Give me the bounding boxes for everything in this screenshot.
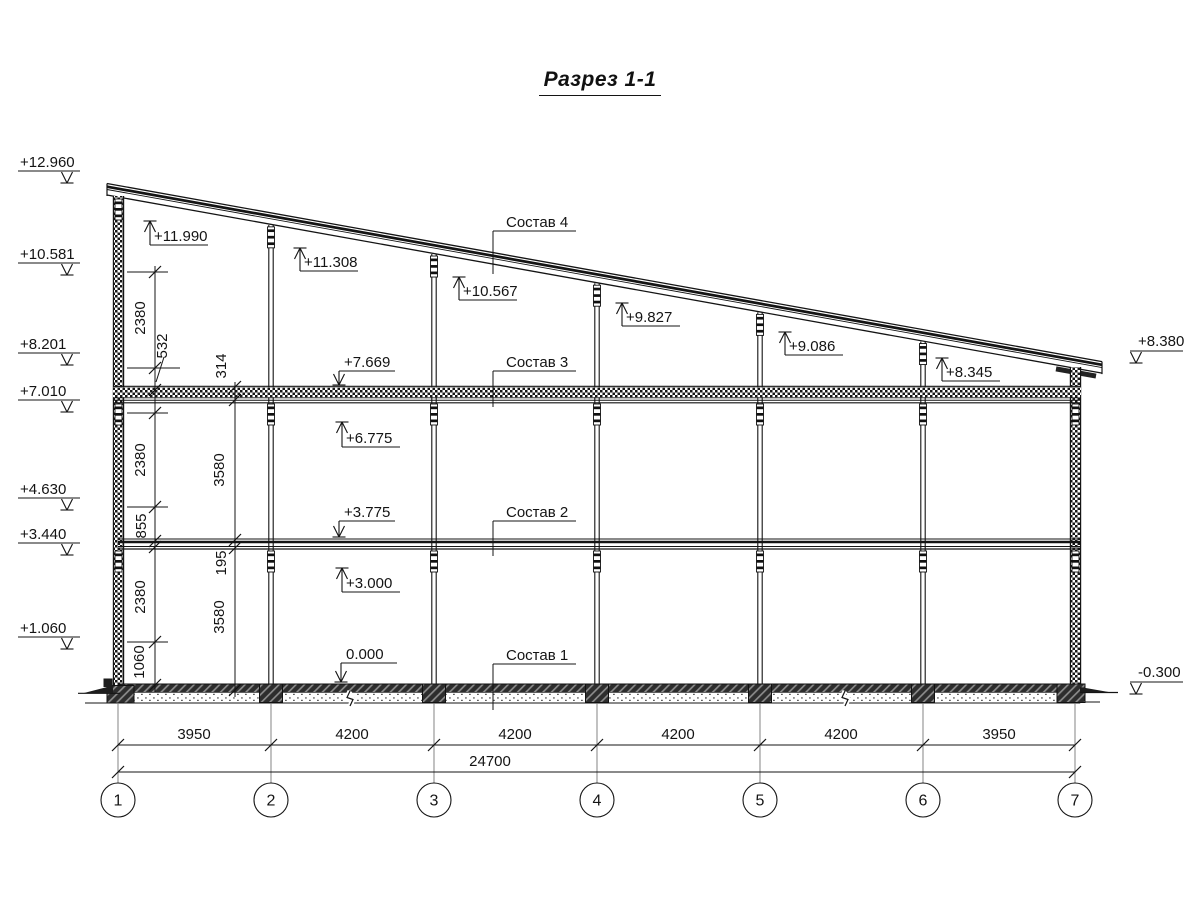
layer-label: Состав 1 bbox=[506, 647, 568, 664]
elevation-mark-arrow bbox=[937, 358, 943, 369]
elevation-mark-arrow bbox=[67, 354, 73, 365]
elevation-mark-text: +3.000 bbox=[346, 575, 392, 592]
splice-bolt bbox=[115, 208, 122, 211]
splice-bolt bbox=[431, 567, 438, 570]
elevation-mark-arrow bbox=[62, 172, 68, 183]
elevation-mark-text: +12.960 bbox=[20, 154, 75, 171]
elevation-mark-text: +11.308 bbox=[304, 254, 358, 271]
splice-bolt bbox=[431, 560, 438, 563]
dim-label: 2380 bbox=[132, 443, 149, 476]
dim-label: 2380 bbox=[132, 301, 149, 334]
column-footing bbox=[749, 684, 772, 703]
elevation-mark-arrow bbox=[62, 638, 68, 649]
splice-bolt bbox=[115, 202, 122, 205]
splice-bolt bbox=[920, 420, 927, 423]
splice-bolt bbox=[594, 413, 601, 416]
splice-bolt bbox=[268, 236, 275, 239]
splice-bolt bbox=[594, 560, 601, 563]
splice-bolt bbox=[757, 413, 764, 416]
column-footing bbox=[586, 684, 609, 703]
axis-number: 6 bbox=[919, 793, 928, 810]
dim-label: 855 bbox=[133, 513, 150, 538]
dim-label: 4200 bbox=[661, 726, 694, 743]
elevation-mark-arrow bbox=[62, 544, 68, 555]
elevation-mark-arrow bbox=[337, 568, 343, 579]
splice-bolt bbox=[757, 407, 764, 410]
splice-bolt bbox=[115, 420, 122, 423]
splice-bolt bbox=[594, 301, 601, 304]
roof-line bbox=[107, 184, 1102, 362]
dim-label: 3950 bbox=[177, 726, 210, 743]
splice-bolt bbox=[757, 554, 764, 557]
dim-label: 4200 bbox=[824, 726, 857, 743]
splice-bolt bbox=[268, 242, 275, 245]
splice-bolt bbox=[594, 420, 601, 423]
dim-label: 532 bbox=[154, 333, 171, 358]
splice-bolt bbox=[920, 346, 927, 349]
elevation-mark-arrow bbox=[1131, 352, 1137, 363]
splice-bolt bbox=[431, 420, 438, 423]
elevation-mark-text: +3.775 bbox=[344, 504, 390, 521]
elevation-mark-arrow bbox=[62, 354, 68, 365]
elevation-mark-text: +6.775 bbox=[346, 430, 392, 447]
dim-label: 24700 bbox=[469, 753, 511, 770]
axis-number: 5 bbox=[756, 793, 765, 810]
splice-bolt bbox=[757, 567, 764, 570]
elevation-mark-text: +11.990 bbox=[154, 228, 208, 245]
elevation-mark-arrow bbox=[67, 172, 73, 183]
splice-bolt bbox=[431, 407, 438, 410]
roof-line bbox=[107, 187, 1102, 365]
splice-bolt bbox=[1072, 554, 1079, 557]
splice-bolt bbox=[920, 359, 927, 362]
wall-hatch bbox=[113, 196, 123, 686]
splice-bolt bbox=[431, 259, 438, 262]
elevation-mark-text: +9.827 bbox=[626, 309, 672, 326]
dim-label: 3580 bbox=[211, 600, 228, 633]
splice-bolt bbox=[268, 420, 275, 423]
floor3-hatch bbox=[113, 387, 1081, 397]
splice-bolt bbox=[431, 272, 438, 275]
splice-bolt bbox=[920, 413, 927, 416]
splice-bolt bbox=[594, 407, 601, 410]
elevation-mark-arrow bbox=[295, 248, 301, 259]
elevation-mark-arrow bbox=[145, 221, 151, 232]
dim-label: 314 bbox=[213, 353, 230, 378]
splice-bolt bbox=[115, 407, 122, 410]
roof-line bbox=[107, 195, 1102, 373]
elevation-mark-arrow bbox=[341, 671, 347, 682]
splice-bolt bbox=[1072, 420, 1079, 423]
elevation-mark-arrow bbox=[617, 303, 623, 314]
splice-bolt bbox=[757, 330, 764, 333]
splice-bolt bbox=[757, 323, 764, 326]
elevation-mark-text: +8.380 bbox=[1138, 333, 1184, 350]
elevation-mark-arrow bbox=[67, 264, 73, 275]
axis-number: 1 bbox=[114, 793, 123, 810]
splice-bolt bbox=[1072, 413, 1079, 416]
column-footing bbox=[423, 684, 446, 703]
axis-number: 7 bbox=[1071, 793, 1080, 810]
splice-bolt bbox=[431, 554, 438, 557]
elevation-mark-arrow bbox=[1136, 683, 1142, 694]
elevation-mark-arrow bbox=[1131, 683, 1137, 694]
splice-bolt bbox=[431, 265, 438, 268]
splice-bolt bbox=[920, 353, 927, 356]
dim-label: 4200 bbox=[335, 726, 368, 743]
elevation-mark-text: +7.669 bbox=[344, 354, 390, 371]
splice-bolt bbox=[920, 554, 927, 557]
elevation-mark-text: +8.201 bbox=[20, 336, 66, 353]
elevation-mark-arrow bbox=[1136, 352, 1142, 363]
dim-label: 2380 bbox=[132, 580, 149, 613]
splice-bolt bbox=[268, 413, 275, 416]
splice-bolt bbox=[268, 229, 275, 232]
splice-bolt bbox=[594, 294, 601, 297]
elevation-mark-arrow bbox=[62, 499, 68, 510]
splice-bolt bbox=[115, 560, 122, 563]
dim-label: 4200 bbox=[498, 726, 531, 743]
dim-label: 3580 bbox=[211, 453, 228, 486]
elevation-mark-arrow bbox=[62, 401, 68, 412]
elevation-mark-text: 0.000 bbox=[346, 646, 384, 663]
splice-bolt bbox=[1072, 407, 1079, 410]
axis-number: 3 bbox=[430, 793, 439, 810]
elevation-mark-text: +8.345 bbox=[946, 364, 992, 381]
roof-line bbox=[107, 190, 1102, 368]
dim-label: 1060 bbox=[131, 645, 148, 678]
splice-bolt bbox=[268, 560, 275, 563]
layer-label: Состав 3 bbox=[506, 354, 568, 371]
elevation-mark-arrow bbox=[67, 499, 73, 510]
column-footing bbox=[260, 684, 283, 703]
splice-bolt bbox=[268, 407, 275, 410]
elevation-mark-text: +7.010 bbox=[20, 383, 66, 400]
elevation-mark-text: -0.300 bbox=[1138, 664, 1181, 681]
drawing-canvas: Разрез 1-1 +12.960+10.581+8.201+7.010+4.… bbox=[0, 0, 1200, 900]
wall-footing bbox=[1057, 684, 1085, 703]
elevation-mark-arrow bbox=[339, 526, 345, 537]
splice-bolt bbox=[115, 215, 122, 218]
elevation-mark-arrow bbox=[780, 332, 786, 343]
elevation-mark-arrow bbox=[454, 277, 460, 288]
section-drawing: +12.960+10.581+8.201+7.010+4.630+3.440+1… bbox=[0, 0, 1200, 900]
elevation-mark-arrow bbox=[334, 526, 340, 537]
column-footing bbox=[912, 684, 935, 703]
elevation-mark-arrow bbox=[67, 401, 73, 412]
splice-bolt bbox=[594, 554, 601, 557]
dim-leader bbox=[156, 357, 164, 382]
layer-label: Состав 4 bbox=[506, 214, 568, 231]
splice-bolt bbox=[757, 560, 764, 563]
splice-bolt bbox=[1072, 560, 1079, 563]
splice-bolt bbox=[268, 554, 275, 557]
dim-label: 195 bbox=[213, 550, 230, 575]
splice-bolt bbox=[268, 567, 275, 570]
elevation-mark-text: +10.581 bbox=[20, 246, 75, 263]
elevation-mark-text: +1.060 bbox=[20, 620, 66, 637]
elevation-mark-arrow bbox=[337, 422, 343, 433]
splice-bolt bbox=[757, 317, 764, 320]
elevation-mark-text: +3.440 bbox=[20, 526, 66, 543]
elevation-mark-arrow bbox=[67, 544, 73, 555]
splice-bolt bbox=[1072, 567, 1079, 570]
splice-bolt bbox=[115, 554, 122, 557]
elevation-mark-arrow bbox=[334, 374, 340, 385]
elevation-mark-text: +10.567 bbox=[463, 283, 518, 300]
elevation-mark-arrow bbox=[336, 671, 342, 682]
plinth bbox=[104, 679, 113, 688]
axis-number: 4 bbox=[593, 793, 602, 810]
splice-bolt bbox=[115, 413, 122, 416]
axis-number: 2 bbox=[267, 793, 276, 810]
splice-bolt bbox=[920, 567, 927, 570]
elevation-mark-text: +4.630 bbox=[20, 481, 66, 498]
elevation-mark-text: +9.086 bbox=[789, 338, 835, 355]
splice-bolt bbox=[115, 567, 122, 570]
elevation-mark-arrow bbox=[339, 374, 345, 385]
splice-bolt bbox=[920, 560, 927, 563]
splice-bolt bbox=[920, 407, 927, 410]
splice-bolt bbox=[594, 288, 601, 291]
dim-label: 3950 bbox=[982, 726, 1015, 743]
elevation-mark-arrow bbox=[67, 638, 73, 649]
elevation-mark-arrow bbox=[62, 264, 68, 275]
splice-bolt bbox=[431, 413, 438, 416]
splice-bolt bbox=[594, 567, 601, 570]
splice-bolt bbox=[757, 420, 764, 423]
layer-label: Состав 2 bbox=[506, 504, 568, 521]
